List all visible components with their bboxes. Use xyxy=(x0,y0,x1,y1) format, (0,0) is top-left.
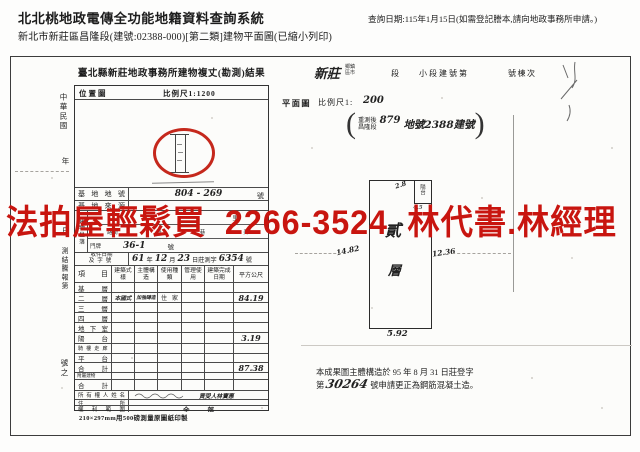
remark-line-2: 第 30264 號申請更正為鋼筋混凝土造。 xyxy=(316,377,478,391)
plan-label: 平面圖 xyxy=(282,97,311,109)
receipt-label-2: 及字號 xyxy=(89,259,115,265)
dash-artifact xyxy=(15,171,69,172)
receipt-number: 6354 xyxy=(219,254,244,264)
col-item: 項目 xyxy=(75,269,111,279)
table-row: 合計 xyxy=(75,379,268,390)
road-line xyxy=(152,181,214,184)
row-label: 合計 xyxy=(75,380,111,390)
row-structure-value: 加強磚造 xyxy=(136,294,155,301)
paper-footnote: 210×297mm用500磅測量原圖紙印製 xyxy=(79,413,188,422)
receipt-number-unit: 號 xyxy=(246,255,252,264)
receipt-day: 23 xyxy=(177,254,190,264)
plan-township-units: 鄉鎮 區市 xyxy=(345,65,355,76)
table-row: 騎樓走廊 xyxy=(75,343,268,353)
plan-subsection-label: 小段建號第 xyxy=(419,68,469,79)
rights-label: 權利範圍 xyxy=(75,406,128,412)
owner-row: 所有權人姓名 買受人林寶惠 xyxy=(75,390,268,399)
floor-char-2: 層 xyxy=(388,260,401,279)
receipt-month: 12 xyxy=(155,254,168,264)
margin-year-label: 年 xyxy=(60,157,71,167)
dim-bottom: 5.92 xyxy=(387,329,408,339)
col-manage: 管理使用 xyxy=(182,267,204,280)
note-line-2: 昌隆段 xyxy=(358,124,377,131)
row-label: 合計 xyxy=(75,363,111,372)
row-label: 四層 xyxy=(75,313,111,322)
location-map-label: 位置圖 xyxy=(79,88,108,99)
site-number-value: 804 - 269 xyxy=(175,189,223,199)
table-row: 附屬建物 xyxy=(75,372,268,379)
township-unit-2: 區市 xyxy=(345,71,355,77)
col-style: 建築式樣 xyxy=(112,267,134,280)
row-area-value: 3.19 xyxy=(241,333,260,343)
balcony-label: 陽台 xyxy=(418,184,426,195)
owner-label: 所有權人姓名 xyxy=(75,391,128,399)
table-row: 基層 xyxy=(75,282,268,292)
note-line-1: 重測後 xyxy=(358,117,377,124)
row-label: 騎樓走廊 xyxy=(75,345,111,352)
paren-close: ) xyxy=(475,109,485,139)
table-row: 平台 xyxy=(75,353,268,362)
remark-number: 30264 xyxy=(325,377,370,391)
survey-form: 位置圖 比例尺1:1200 基地地號 804 - 269 號 xyxy=(74,85,269,411)
row-label: 地下室 xyxy=(75,323,111,332)
row-use-value: 住家 xyxy=(158,293,181,302)
plan-scale-value: 200 xyxy=(363,95,384,106)
margin-number-label: 號之 xyxy=(59,359,70,378)
margin-era-label: 中華民國 xyxy=(58,93,69,131)
location-map-header: 位置圖 比例尺1:1200 xyxy=(75,86,268,100)
row-label: 二層 xyxy=(75,293,111,302)
remark-pre: 第 xyxy=(316,381,324,390)
scanned-document-page: 中華民國 年 日 測結騰報第 號之 臺北縣新莊地政事務所建物複丈(勘測)結果 位… xyxy=(10,56,631,436)
receipt-year-unit: 年 xyxy=(147,255,153,264)
table-row: 陽台 3.19 xyxy=(75,332,268,343)
owner-handwriting-scribble xyxy=(133,391,191,399)
owner-value: 買受人林寶惠 xyxy=(199,391,234,399)
system-title: 北北桃地政電傳全功能地籍資料查詢系統 xyxy=(18,8,264,27)
plan-township-value: 新莊 xyxy=(314,63,340,82)
receipt-year: 61 xyxy=(132,254,145,264)
row-label: 陽台 xyxy=(75,333,111,343)
table-row: 合計 87.38 xyxy=(75,362,268,372)
rights-value: 全部 xyxy=(165,406,232,412)
row-label: 基層 xyxy=(75,283,111,292)
plan-duan-label: 段 xyxy=(391,68,399,79)
site-number-row: 基地地號 804 - 269 號 xyxy=(75,187,268,200)
note-parcel-no: 879 xyxy=(380,115,401,126)
remark-post: 號申請更正為鋼筋混凝土造。 xyxy=(370,381,478,390)
row-label: 平台 xyxy=(75,354,111,362)
note-rest: 地號2388建號 xyxy=(403,117,474,132)
red-highlight-circle xyxy=(153,128,215,178)
rights-row: 權利範圍 全部 xyxy=(75,405,268,412)
form-title: 臺北縣新莊地政事務所建物複丈(勘測)結果 xyxy=(69,65,274,79)
plan-building-no-label: 號棟次 xyxy=(508,68,537,79)
dash-artifact xyxy=(447,253,511,254)
resurvey-note: ( 重測後 昌隆段 879 地號2388建號 ) xyxy=(346,109,485,139)
query-date: 查詢日期:115年1月15日(如需登記謄本,請向地政事務所申請。) xyxy=(368,13,597,25)
scan-noise xyxy=(11,57,13,59)
receipt-row: 收件日期 及字號 61 年 12 月 23 日莊測字 6354 號 xyxy=(75,252,268,265)
col-use: 使用種類 xyxy=(158,267,181,280)
site-number-label: 基地地號 xyxy=(75,189,128,199)
pen-scribbles xyxy=(555,59,585,129)
document-subtitle: 新北市新莊區昌隆段(建號:02388-000)[第二類]建物平面圖(已縮小列印) xyxy=(18,28,332,43)
paren-open: ( xyxy=(346,109,356,139)
row-area-value: 87.38 xyxy=(238,363,263,372)
row-label: 三層 xyxy=(75,303,111,312)
col-structure: 主體構造 xyxy=(135,267,157,280)
location-map-scale: 比例尺1:1200 xyxy=(163,88,216,99)
col-done: 建築完成日期 xyxy=(205,267,233,280)
table-header-row: 項目 建築式樣 主體構造 使用種類 管理使用 建築完成日期 平方公尺 xyxy=(75,265,268,282)
site-number-unit: 號 xyxy=(257,191,264,200)
red-ad-watermark: 法拍屋輕鬆買 2266-3524 林代書.林經理 xyxy=(6,200,617,246)
col-area: 平方公尺 xyxy=(239,270,263,279)
row-style-value: 本國式 xyxy=(115,294,132,302)
row-area-value: 84.19 xyxy=(238,293,263,302)
township-unit-1: 鄉鎮 xyxy=(345,65,355,71)
receipt-month-unit: 月 xyxy=(169,255,175,264)
location-map-area xyxy=(75,99,268,187)
dash-artifact xyxy=(295,253,341,254)
scan-artifact-line xyxy=(301,345,632,346)
table-row: 四層 xyxy=(75,312,268,322)
margin-report-label: 測結騰報第 xyxy=(58,247,68,291)
receipt-word-label: 日莊測字 xyxy=(192,255,217,264)
table-row: 地下室 xyxy=(75,322,268,332)
table-row: 三層 xyxy=(75,302,268,312)
land-registry-printout: 北北桃地政電傳全功能地籍資料查詢系統 查詢日期:115年1月15日(如需登記謄本… xyxy=(0,0,640,452)
table-row: 二層 本國式 加強磚造 住家 84.19 xyxy=(75,292,268,302)
